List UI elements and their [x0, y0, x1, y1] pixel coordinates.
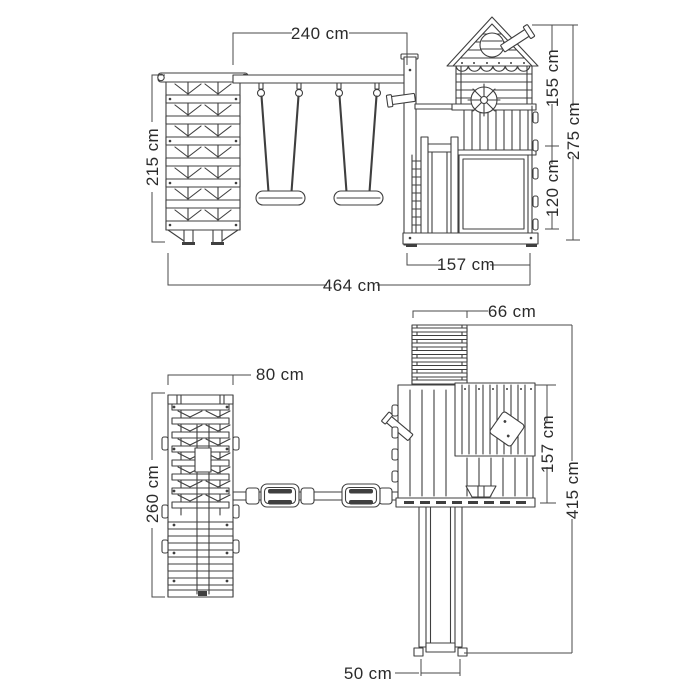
swing-seat-plan-left	[261, 484, 299, 507]
dim-label-frame-height: 215 cm	[143, 128, 162, 186]
slide-plan	[414, 507, 467, 656]
dim-total-height: 275 cm	[564, 25, 583, 240]
roof	[447, 17, 538, 71]
dim-label-frame-depth: 260 cm	[143, 465, 162, 523]
swing-beam-plan	[233, 484, 398, 507]
dim-frame-width: 80 cm	[168, 365, 304, 385]
dim-label-ladder-width: 66 cm	[488, 302, 536, 321]
playhouse-tower-front	[415, 17, 538, 233]
tower-footprint-plan	[381, 383, 535, 507]
dim-tower-depth: 157 cm	[535, 385, 557, 503]
deck-railing	[415, 104, 536, 155]
tower-base-plan	[396, 498, 535, 507]
lower-cabin-panel	[459, 155, 528, 233]
roof-overhang-plan	[455, 383, 535, 456]
dim-label-tower-depth: 157 cm	[538, 415, 557, 473]
dim-label-tower-width: 157 cm	[437, 255, 495, 274]
dim-beam-width: 240 cm	[233, 24, 407, 65]
playset-dimension-diagram: 240 cm 215 cm 155 cm 120 cm 275 cm 157 c…	[0, 0, 700, 700]
dim-ladder-width: 66 cm	[413, 302, 536, 321]
dim-frame-depth: 260 cm	[143, 393, 165, 597]
dim-slide-width: 50 cm	[344, 659, 460, 683]
dim-tower-width: 157 cm	[407, 253, 530, 285]
dim-label-frame-width: 80 cm	[256, 365, 304, 384]
dim-label-tower-upper: 155 cm	[543, 49, 562, 107]
plan-view: 66 cm 80 cm 260 cm 157 cm 415 cm 50 cm	[143, 302, 582, 683]
climbing-frame-plan	[162, 395, 239, 597]
swing-seat-plan-right	[342, 484, 380, 507]
dim-label-deck-height: 120 cm	[543, 159, 562, 217]
dim-label-slide-width: 50 cm	[344, 664, 392, 683]
climbing-frame-front	[158, 73, 248, 245]
base-front	[403, 233, 538, 247]
sand-bench-plan	[466, 486, 496, 497]
dim-frame-height: 215 cm	[143, 75, 165, 242]
dim-label-beam-width: 240 cm	[291, 24, 349, 43]
dim-label-total-depth: 415 cm	[563, 461, 582, 519]
ladder-plan	[412, 325, 467, 385]
swing-right	[334, 83, 383, 205]
dim-label-total-width: 464 cm	[323, 276, 381, 295]
dim-label-total-height: 275 cm	[564, 102, 583, 160]
steering-wheel-icon	[468, 84, 500, 116]
swing-left	[256, 83, 305, 205]
front-elevation-view: 240 cm 215 cm 155 cm 120 cm 275 cm 157 c…	[143, 17, 583, 295]
dim-deck-height: 120 cm	[543, 146, 562, 229]
right-wall	[532, 106, 538, 233]
slide-front	[421, 137, 458, 243]
